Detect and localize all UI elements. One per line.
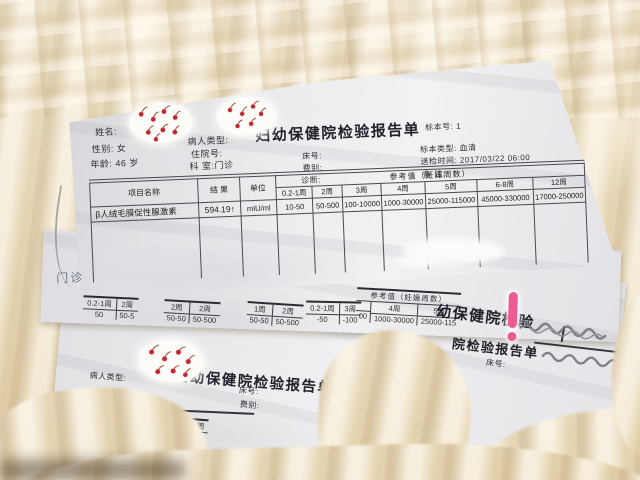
report-title: 妇幼保健院检验报告单 [255,118,421,146]
photo-of-lab-report-on-blanket: 姓名: 性别: 女 年龄: 46 岁 病人类型: 住院号: 科 室:门诊 妇幼保… [0,0,640,480]
exclamation-dot [507,332,516,341]
ref-fragment: 50-500 [272,317,302,328]
department-value: 门诊 [214,160,233,171]
week-label: 0.2-1周 [306,303,339,316]
gender-value: 女 [117,143,127,153]
ref-fragment: 50-500 [190,315,220,326]
table-fragment-slip: 2周50-50 2周50-500 [163,299,220,325]
ref-fragment: 50-5 [116,311,137,321]
col-unit-header: 单位 [239,176,276,201]
sample-type-row: 标本类型: 血清 [420,142,477,155]
age-value: 46 岁 [115,158,139,169]
ref-fragment: 00 [356,311,371,321]
ref-value: 10-50 [276,198,313,214]
sample-no-label: 标本号: [425,122,454,132]
fee-label: 费别: [239,399,260,412]
sample-type-value: 血清 [459,143,476,153]
bed-label: 床号: [239,385,260,398]
name-label: 姓名: [95,124,118,138]
shadow [0,460,185,480]
ref-fragment: 50-50 [246,315,272,326]
cherry-sticker [216,92,278,140]
ref-value: 100-10000 [342,195,381,212]
gender-row: 性别: 女 [91,141,126,155]
age-row: 年龄: 46 岁 [90,156,139,171]
sample-no-value: 1 [456,122,461,131]
table-fragment-slip: 0.2-1周50 2周50-5 [83,295,139,321]
sample-type-label: 标本类型: [420,144,457,154]
results-table-wrapper: 项目名称 结 果 单位 参考值（妊娠周数） 0.2-1周 2周 3周 4周 5周… [89,160,589,283]
department-label: 科 室: [189,161,214,172]
gender-label: 性别: [92,144,114,155]
test-result: 594.19↑ [198,201,241,218]
col-result-header: 结 果 [198,177,241,203]
handwritten-note: 门诊 [56,269,85,287]
exclamation-bar [507,292,517,328]
ref-fragment: 50 [83,309,116,320]
results-table: 项目名称 结 果 单位 参考值（妊娠周数） 0.2-1周 2周 3周 4周 5周… [89,163,588,283]
whiteout-smudge [396,256,438,267]
main-report-content: 姓名: 性别: 女 年龄: 46 岁 病人类型: 住院号: 科 室:门诊 妇幼保… [78,85,615,296]
bed-label: 床号: [302,150,322,162]
pink-exclamation-mark-icon [501,292,523,349]
ref-fragment: 1000-30000 [371,314,417,326]
ref-fragment: -50 [306,315,339,325]
ref-value: 50-500 [312,197,343,213]
age-label: 年龄: [90,159,112,170]
table-fragment-slip: 1周50-50 2周50-500 [246,301,303,328]
test-unit: mIU/ml [240,200,277,216]
sheet-c-bed-label: 床号: [485,357,506,370]
sample-no-row: 标本号: 1 [425,121,461,133]
department-row: 科 室:门诊 [189,158,234,173]
ref-fragment: 50-50 [163,313,189,323]
week-label: 2周 [117,299,139,312]
table-fragment-slip: 0.2-1周-50 3周-100 [306,301,361,325]
patient-type-label: 病人类型: [89,370,126,384]
cherry-sticker [128,97,194,148]
cherry-sticker [133,336,208,386]
